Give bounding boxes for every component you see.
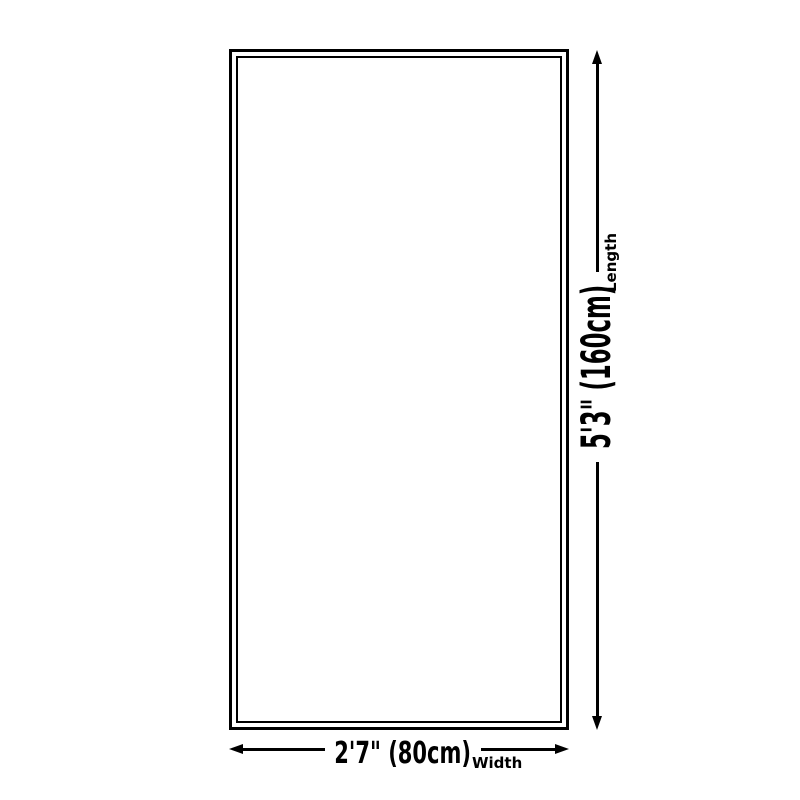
width-axis-label: Width [472,755,522,772]
length-axis-label: Length [603,233,620,292]
rug-surface [236,56,562,723]
arrow-left-icon [229,744,243,754]
arrow-up-icon [592,50,602,64]
length-dimension: 5'3" (160cm) Length [574,50,620,730]
width-dimension-line: Width [481,748,555,751]
arrow-right-icon [555,744,569,754]
width-dimension: 2'7" (80cm) Width [229,726,569,772]
width-value: 2'7" (80cm) [335,739,472,769]
arrow-down-icon [592,716,602,730]
length-dimension-line [596,462,599,716]
length-value: 5'3" (160cm) [577,285,617,449]
length-dimension-line: Length [596,64,599,272]
width-dimension-line [243,748,325,751]
length-value-box: 5'3" (160cm) [577,292,617,442]
width-value-box: 2'7" (80cm) [333,739,473,769]
size-diagram: 5'3" (160cm) Length 2'7" (80cm) Width [0,0,800,800]
rug-outline [229,49,569,730]
